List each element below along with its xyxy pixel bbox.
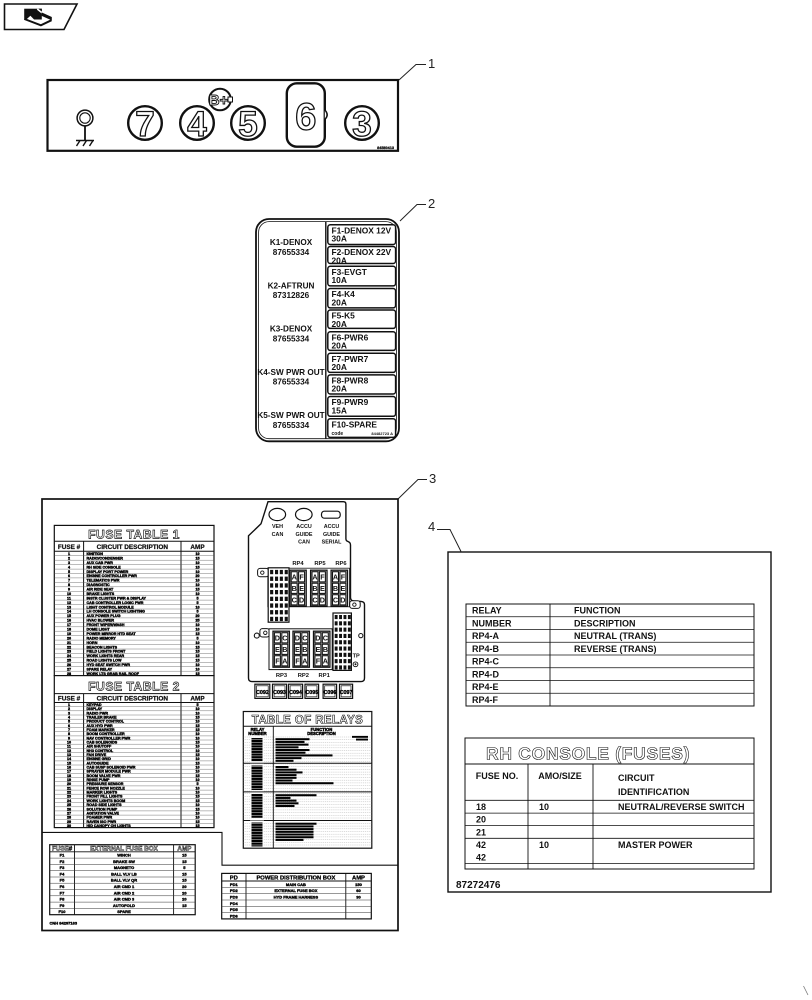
svg-text:10: 10: [195, 570, 199, 574]
svg-text:BRAKE SW: BRAKE SW: [113, 859, 135, 864]
svg-text:FUNCTION: FUNCTION: [574, 606, 621, 616]
svg-text:NEUTRAL (TRANS): NEUTRAL (TRANS): [574, 631, 656, 641]
svg-text:RADIO MEMORY: RADIO MEMORY: [87, 636, 117, 640]
svg-text:87312826: 87312826: [273, 291, 310, 300]
svg-text:15: 15: [195, 645, 199, 649]
svg-text:16: 16: [67, 619, 71, 623]
svg-text:F9: F9: [60, 903, 65, 908]
svg-text:20A: 20A: [332, 297, 347, 307]
svg-text:1: 1: [68, 552, 70, 556]
svg-text:15: 15: [195, 632, 199, 636]
svg-text:3: 3: [429, 471, 436, 486]
svg-text:20: 20: [67, 636, 71, 640]
svg-text:B: B: [292, 584, 297, 593]
svg-text:15: 15: [182, 859, 187, 864]
svg-text:A: A: [312, 573, 317, 582]
svg-text:RP2: RP2: [298, 673, 309, 679]
svg-text:IDENTIFICATION: IDENTIFICATION: [618, 787, 689, 797]
svg-text:K3-DENOX: K3-DENOX: [270, 325, 313, 334]
svg-text:C093: C093: [273, 690, 286, 696]
svg-text:DESCRIPTION: DESCRIPTION: [307, 731, 336, 736]
svg-text:12: 12: [67, 601, 71, 605]
svg-text:RP4-F: RP4-F: [472, 695, 499, 705]
svg-text:AUX POWER PLUG: AUX POWER PLUG: [87, 614, 121, 618]
svg-text:F: F: [299, 573, 304, 582]
svg-text:SPARE: SPARE: [117, 909, 131, 914]
svg-text:FUSE TABLE 2: FUSE TABLE 2: [88, 680, 180, 694]
svg-text:20: 20: [476, 815, 486, 825]
svg-text:B: B: [302, 645, 307, 654]
svg-text:A: A: [292, 573, 297, 582]
svg-text:15: 15: [67, 614, 71, 618]
svg-text:11: 11: [67, 596, 71, 600]
svg-text:PD3: PD3: [230, 895, 239, 900]
svg-text:30A: 30A: [332, 234, 347, 244]
svg-text:87655334: 87655334: [273, 378, 310, 387]
svg-text:BALL VLV LB: BALL VLV LB: [111, 872, 137, 877]
svg-text:27: 27: [67, 668, 71, 672]
svg-text:CAN: CAN: [272, 532, 284, 538]
svg-text:HYD SEAT SWITCH PWR: HYD SEAT SWITCH PWR: [87, 663, 131, 667]
svg-text:EXTERNAL FUSE BOX: EXTERNAL FUSE BOX: [274, 888, 317, 893]
svg-text:25: 25: [67, 659, 71, 663]
svg-text:D: D: [295, 634, 300, 643]
svg-text:10: 10: [195, 561, 199, 565]
svg-text:20A: 20A: [332, 255, 347, 265]
svg-text:RP4-B: RP4-B: [472, 644, 500, 654]
svg-text:K1-DENOX: K1-DENOX: [270, 238, 313, 247]
svg-text:RP4-D: RP4-D: [472, 669, 500, 679]
svg-text:18: 18: [476, 802, 486, 812]
svg-text:F2: F2: [60, 859, 65, 864]
svg-text:F7: F7: [60, 890, 65, 895]
svg-text:20A: 20A: [332, 319, 347, 329]
svg-text:DESCRIPTION: DESCRIPTION: [574, 618, 636, 628]
svg-text:1: 1: [428, 56, 435, 71]
svg-text:REVERSE (TRANS): REVERSE (TRANS): [574, 644, 657, 654]
svg-text:FRONT WIPER/WASH: FRONT WIPER/WASH: [87, 623, 125, 627]
svg-text:10: 10: [195, 579, 199, 583]
svg-text:C096: C096: [323, 690, 336, 696]
svg-text:EXTERNAL FUSE BOX: EXTERNAL FUSE BOX: [90, 846, 159, 853]
svg-text:RADIO/CONDENSER: RADIO/CONDENSER: [87, 557, 124, 561]
svg-text:LH CONSOLE SWITCH LIGHTING: LH CONSOLE SWITCH LIGHTING: [87, 610, 146, 614]
svg-text:7: 7: [68, 579, 70, 583]
svg-text:HORN: HORN: [87, 641, 98, 645]
svg-text:7: 7: [135, 105, 154, 144]
svg-text:VEH: VEH: [272, 524, 283, 530]
svg-text:42: 42: [476, 853, 486, 863]
svg-text:F6: F6: [60, 884, 65, 889]
svg-text:C097: C097: [340, 690, 353, 696]
svg-text:20: 20: [195, 614, 199, 618]
svg-text:B: B: [323, 645, 328, 654]
svg-text:10: 10: [195, 552, 199, 556]
svg-text:RP5: RP5: [314, 561, 326, 567]
svg-text:C: C: [282, 634, 287, 643]
svg-text:D: D: [340, 596, 345, 605]
svg-text:84482723 A: 84482723 A: [371, 431, 393, 436]
svg-text:15: 15: [182, 903, 187, 908]
svg-text:CIRCUIT DESCRIPTION: CIRCUIT DESCRIPTION: [97, 695, 169, 702]
svg-text:DISPLAY PORT POWER: DISPLAY PORT POWER: [87, 570, 129, 574]
svg-text:NUMBER: NUMBER: [248, 731, 266, 736]
svg-text:A: A: [333, 573, 338, 582]
svg-text:E: E: [275, 645, 280, 654]
svg-text:20: 20: [182, 884, 187, 889]
svg-text:10: 10: [195, 641, 199, 645]
svg-text:10: 10: [195, 628, 199, 632]
svg-text:6: 6: [295, 97, 316, 139]
svg-text:E: E: [299, 584, 304, 593]
svg-text:17: 17: [67, 623, 71, 627]
svg-text:B: B: [333, 584, 338, 593]
svg-text:10: 10: [67, 592, 71, 596]
svg-text:F5: F5: [60, 878, 65, 883]
svg-text:A: A: [282, 657, 287, 666]
svg-text:AIR CMD 1: AIR CMD 1: [114, 884, 135, 889]
svg-text:NUMBER: NUMBER: [472, 618, 512, 628]
svg-text:code: code: [332, 431, 344, 437]
svg-text:ACCU: ACCU: [324, 524, 340, 530]
svg-text:15: 15: [195, 565, 199, 569]
svg-text:F1: F1: [60, 853, 65, 858]
svg-text:5: 5: [196, 601, 198, 605]
svg-text:A: A: [323, 657, 328, 666]
svg-text:FUSE TABLE 1: FUSE TABLE 1: [88, 528, 180, 542]
svg-text:WORK LIGHTS REAR: WORK LIGHTS REAR: [87, 654, 125, 658]
svg-text:MAIN CAB: MAIN CAB: [286, 882, 306, 887]
svg-text:ENGINE CONTROLLER PWR: ENGINE CONTROLLER PWR: [87, 574, 138, 578]
svg-text:HYD FRAME HARNESS: HYD FRAME HARNESS: [274, 895, 319, 900]
svg-text:FUSE #: FUSE #: [58, 544, 81, 551]
svg-text:CAN: CAN: [298, 540, 310, 546]
svg-text:F8: F8: [60, 897, 65, 902]
svg-text:F: F: [316, 657, 321, 666]
svg-text:C: C: [323, 634, 328, 643]
svg-text:15: 15: [195, 557, 199, 561]
svg-text:20: 20: [182, 897, 187, 902]
svg-text:NEUTRAL/REVERSE SWITCH: NEUTRAL/REVERSE SWITCH: [618, 802, 745, 812]
svg-text:RP4-E: RP4-E: [472, 682, 499, 692]
svg-text:30: 30: [67, 824, 71, 828]
svg-text:60: 60: [356, 888, 361, 893]
svg-text:10: 10: [195, 668, 199, 672]
svg-text:F4: F4: [60, 872, 65, 877]
svg-text:D: D: [275, 634, 280, 643]
svg-text:CIRCUIT: CIRCUIT: [618, 773, 655, 783]
svg-text:C: C: [302, 634, 307, 643]
svg-text:TABLE OF RELAYS: TABLE OF RELAYS: [252, 714, 363, 726]
svg-text:2: 2: [68, 557, 70, 561]
svg-text:C: C: [312, 596, 317, 605]
svg-text:E: E: [320, 584, 325, 593]
svg-text:IGNITION: IGNITION: [87, 552, 104, 556]
svg-text:22: 22: [67, 645, 71, 649]
svg-text:B: B: [282, 645, 287, 654]
svg-text:42: 42: [476, 840, 486, 850]
svg-text:F3: F3: [60, 865, 65, 870]
svg-text:ACCU: ACCU: [296, 524, 312, 530]
svg-text:D: D: [315, 634, 320, 643]
svg-text:FUSE#: FUSE#: [52, 846, 73, 853]
svg-text:15: 15: [195, 588, 199, 592]
svg-text:RP1: RP1: [319, 673, 331, 679]
svg-text:20: 20: [182, 890, 187, 895]
svg-text:84580413: 84580413: [377, 146, 394, 150]
svg-text:10: 10: [195, 592, 199, 596]
svg-text:F10: F10: [59, 909, 67, 914]
svg-text:10: 10: [195, 605, 199, 609]
svg-text:F: F: [295, 657, 300, 666]
svg-text:B+: B+: [209, 92, 229, 109]
svg-text:C092: C092: [256, 690, 269, 696]
svg-text:6: 6: [68, 574, 70, 578]
svg-text:FIELD LIGHTS FRONT: FIELD LIGHTS FRONT: [87, 650, 127, 654]
svg-text:PD4: PD4: [230, 901, 239, 906]
svg-text:AMP: AMP: [190, 695, 205, 702]
svg-text:E: E: [341, 584, 346, 593]
svg-text:PD2: PD2: [230, 888, 239, 893]
svg-text:13: 13: [67, 605, 71, 609]
svg-text:87272476: 87272476: [456, 880, 501, 891]
svg-text:10: 10: [195, 663, 199, 667]
svg-text:87655334: 87655334: [273, 248, 310, 257]
svg-text:ROAD LIGHTS LOW: ROAD LIGHTS LOW: [87, 659, 123, 663]
svg-text:8: 8: [68, 583, 70, 587]
svg-text:AIR CMD 2: AIR CMD 2: [114, 890, 135, 895]
svg-text:23: 23: [67, 650, 71, 654]
svg-text:HID CANOPY OH LIGHTS: HID CANOPY OH LIGHTS: [87, 824, 132, 828]
svg-text:RP3: RP3: [276, 673, 288, 679]
svg-text:AMP: AMP: [177, 846, 191, 853]
svg-text:4: 4: [187, 105, 207, 144]
svg-text:RP4: RP4: [292, 561, 304, 567]
svg-text:9: 9: [68, 588, 70, 592]
svg-text:DOME LIGHT: DOME LIGHT: [87, 628, 111, 632]
svg-text:25: 25: [195, 619, 199, 623]
svg-text:FUSE #: FUSE #: [58, 695, 81, 702]
svg-text:5: 5: [196, 610, 198, 614]
svg-text:150: 150: [355, 882, 362, 887]
svg-text:RP4-A: RP4-A: [472, 631, 500, 641]
svg-text:SPARE RELAY: SPARE RELAY: [87, 668, 113, 672]
svg-text:B: B: [312, 584, 317, 593]
svg-text:PD1: PD1: [230, 882, 239, 887]
svg-text:3: 3: [352, 105, 371, 144]
svg-text:21: 21: [67, 641, 71, 645]
svg-text:AMP: AMP: [352, 876, 365, 882]
svg-text:15A: 15A: [332, 405, 347, 415]
svg-text:30: 30: [356, 895, 361, 900]
svg-text:10: 10: [195, 623, 199, 627]
svg-text:10: 10: [539, 802, 549, 812]
svg-text:POWER DISTRIBUTION BOX: POWER DISTRIBUTION BOX: [256, 876, 335, 882]
svg-text:AMP: AMP: [190, 544, 205, 551]
svg-text:PD5: PD5: [230, 907, 239, 912]
svg-text:20A: 20A: [332, 362, 347, 372]
svg-text:5: 5: [238, 105, 257, 144]
svg-text:87655334: 87655334: [273, 421, 310, 430]
svg-text:POWER MIRROR HTD SEAT: POWER MIRROR HTD SEAT: [87, 632, 137, 636]
svg-text:19: 19: [67, 632, 71, 636]
svg-text:87655334: 87655334: [273, 334, 310, 343]
svg-text:AUX CAB PWR: AUX CAB PWR: [87, 561, 114, 565]
svg-text:CAB CONTROLLER LOGIC PWR: CAB CONTROLLER LOGIC PWR: [87, 601, 144, 605]
svg-text:F: F: [320, 573, 325, 582]
svg-text:K5-SW PWR OUT: K5-SW PWR OUT: [257, 411, 324, 420]
svg-text:SERIAL: SERIAL: [322, 540, 342, 546]
svg-text:20: 20: [195, 574, 199, 578]
svg-text:10: 10: [539, 840, 549, 850]
svg-text:PD: PD: [230, 876, 238, 882]
svg-text:BRAKE LIGHTS: BRAKE LIGHTS: [87, 592, 115, 596]
svg-text:BALL VLV QR: BALL VLV QR: [111, 878, 137, 883]
svg-text:INSTR CLUSTER PWR & DISPLAY: INSTR CLUSTER PWR & DISPLAY: [87, 596, 147, 600]
svg-text:E: E: [316, 645, 321, 654]
svg-text:LIGHT CONTROL MODULE: LIGHT CONTROL MODULE: [87, 605, 135, 609]
svg-text:3: 3: [68, 561, 70, 565]
svg-text:5: 5: [68, 570, 70, 574]
svg-text:5: 5: [196, 596, 198, 600]
svg-text:RH CONSOLE (FUSES): RH CONSOLE (FUSES): [486, 744, 690, 764]
svg-text:PD6: PD6: [230, 914, 239, 919]
svg-text:15: 15: [195, 824, 199, 828]
svg-text:18: 18: [67, 628, 71, 632]
svg-text:C094: C094: [289, 690, 302, 696]
svg-text:C: C: [292, 596, 297, 605]
svg-text:F: F: [275, 657, 280, 666]
svg-text:26: 26: [67, 663, 71, 667]
svg-text:TP: TP: [353, 654, 360, 660]
svg-text:BEACON LIGHTS: BEACON LIGHTS: [87, 645, 118, 649]
svg-text:A: A: [302, 657, 307, 666]
svg-text:D: D: [320, 596, 325, 605]
svg-text:10A: 10A: [332, 275, 347, 285]
svg-text:21: 21: [476, 827, 486, 837]
svg-text:AIR RIDE SEAT: AIR RIDE SEAT: [87, 588, 115, 592]
svg-text:CNH 84297163: CNH 84297163: [50, 921, 78, 926]
svg-text:CIRCUIT DESCRIPTION: CIRCUIT DESCRIPTION: [97, 544, 169, 551]
svg-text:20A: 20A: [332, 384, 347, 394]
svg-text:F: F: [341, 573, 346, 582]
svg-text:20A: 20A: [332, 341, 347, 351]
svg-text:K2-AFTRUN: K2-AFTRUN: [268, 281, 315, 290]
svg-text:TELEMATICS PWR: TELEMATICS PWR: [87, 579, 120, 583]
svg-text:MASTER POWER: MASTER POWER: [618, 840, 693, 850]
svg-text:DIAGNOSTIC: DIAGNOSTIC: [87, 583, 110, 587]
svg-text:15: 15: [195, 659, 199, 663]
svg-text:5: 5: [196, 636, 198, 640]
svg-text:15: 15: [182, 872, 187, 877]
svg-text:15: 15: [195, 650, 199, 654]
svg-text:HVAC BLOWER: HVAC BLOWER: [87, 619, 115, 623]
svg-text:10: 10: [195, 583, 199, 587]
svg-text:K4-SW PWR OUT: K4-SW PWR OUT: [257, 368, 324, 377]
svg-text:FUSE NO.: FUSE NO.: [476, 771, 519, 781]
svg-text:E: E: [295, 645, 300, 654]
svg-text:C095: C095: [305, 690, 318, 696]
svg-text:RP4-C: RP4-C: [472, 657, 500, 667]
svg-text:RELAY: RELAY: [472, 606, 502, 616]
svg-text:MAGNETO: MAGNETO: [114, 865, 134, 870]
svg-text:15: 15: [182, 853, 187, 858]
svg-text:15: 15: [182, 878, 187, 883]
svg-text:2: 2: [428, 196, 435, 211]
svg-text:WINCH: WINCH: [117, 853, 131, 858]
svg-text:C: C: [333, 596, 338, 605]
svg-text:RP6: RP6: [335, 561, 347, 567]
svg-text:RH SIDE CONSOLE: RH SIDE CONSOLE: [87, 565, 122, 569]
svg-text:GUIDE: GUIDE: [295, 532, 312, 538]
svg-text:AMO/SIZE: AMO/SIZE: [538, 771, 582, 781]
svg-text:AUTOFOLD: AUTOFOLD: [113, 903, 135, 908]
svg-text:D: D: [299, 596, 304, 605]
svg-text:GUIDE: GUIDE: [323, 532, 340, 538]
svg-text:F10-SPARE: F10-SPARE: [332, 419, 378, 429]
svg-text:15: 15: [195, 654, 199, 658]
svg-text:AIR CMD 3: AIR CMD 3: [114, 897, 135, 902]
svg-text:4: 4: [428, 519, 435, 534]
